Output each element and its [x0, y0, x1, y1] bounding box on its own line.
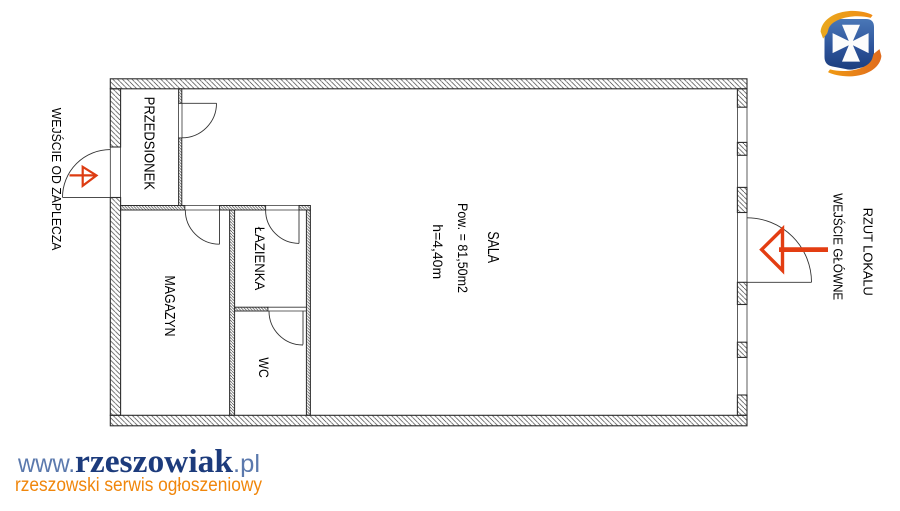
svg-text:PRZEDSIONEK: PRZEDSIONEK [141, 97, 158, 190]
svg-text:rzeszowski serwis ogłoszeniowy: rzeszowski serwis ogłoszeniowy [15, 474, 262, 496]
svg-text:WEJŚCIE GŁÓWNE: WEJŚCIE GŁÓWNE [831, 193, 846, 300]
svg-text:h=4,40m: h=4,40m [430, 224, 445, 279]
svg-text:MAGAZYN: MAGAZYN [161, 276, 178, 337]
svg-text:WC: WC [256, 357, 272, 377]
svg-text:SALA: SALA [484, 231, 501, 263]
svg-text:ŁAZIENKA: ŁAZIENKA [252, 227, 268, 291]
svg-text:Pow. = 81,50m2: Pow. = 81,50m2 [455, 203, 470, 293]
svg-text:WEJŚCIE OD ZAPLECZA: WEJŚCIE OD ZAPLECZA [49, 108, 64, 251]
svg-text:RZUT LOKALU: RZUT LOKALU [861, 208, 876, 296]
